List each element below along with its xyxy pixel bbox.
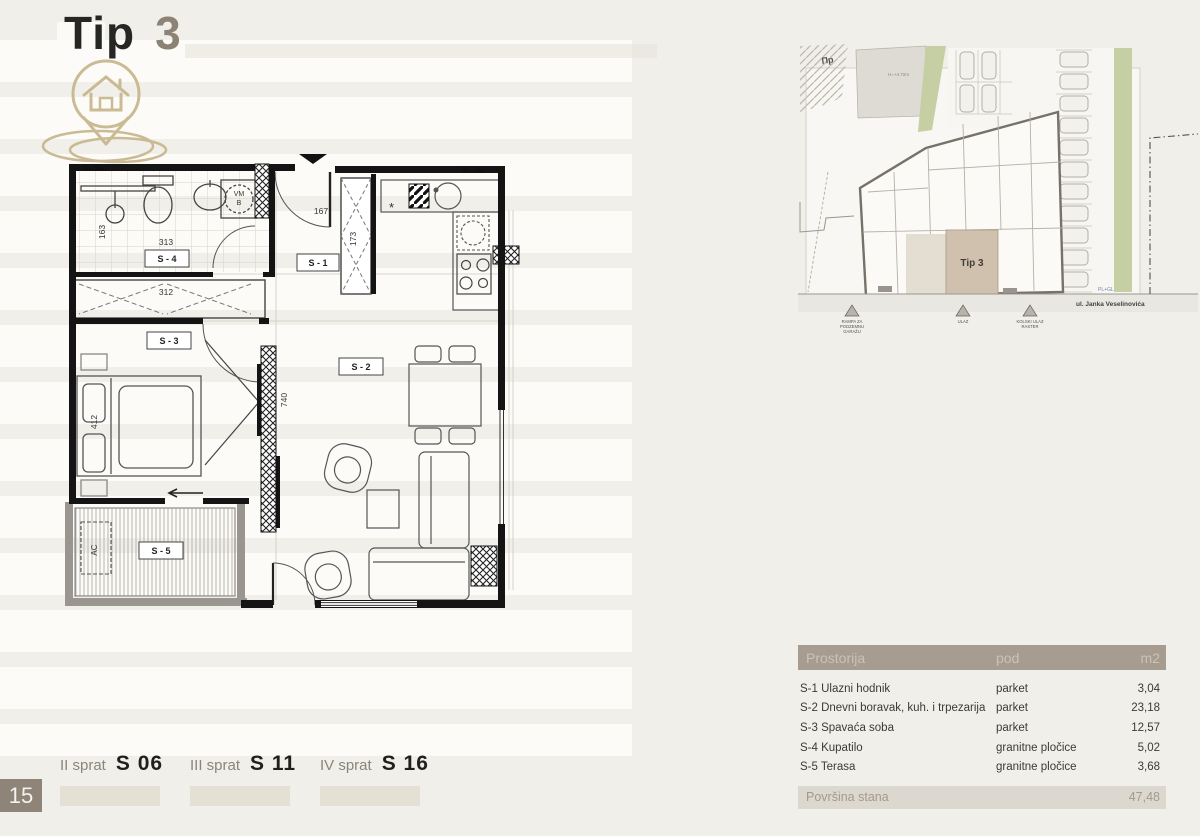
- floor-strip: 15 II spratS 06 III spratS 11 IV spratS …: [0, 752, 700, 812]
- dim-173: 173: [348, 232, 358, 246]
- total-label: Površina stana: [806, 790, 1108, 804]
- svg-text:B: B: [237, 200, 242, 207]
- svg-text:GARAŽU: GARAŽU: [843, 329, 860, 334]
- svg-text:S - 1: S - 1: [308, 258, 327, 268]
- armchair-1: [321, 440, 375, 495]
- terrace-wall-left: [65, 502, 73, 606]
- brochure-page: Tip3: [0, 0, 1200, 836]
- utility-label: PL+GL: [1098, 287, 1114, 293]
- kitchen-sink: [435, 183, 461, 209]
- property-line: [1150, 134, 1198, 294]
- wall-column-bath: [255, 164, 269, 218]
- dim-312: 312: [159, 287, 173, 297]
- table-row: S-4 Kupatilo granitne pločice 5,02: [798, 738, 1166, 758]
- kitchen-counter: [381, 180, 500, 310]
- dim-313: 313: [159, 237, 173, 247]
- title-band: [185, 44, 657, 58]
- terrace-exit-arrow: [169, 489, 203, 497]
- wardrobe-312: 312: [75, 280, 265, 318]
- site-plan: Пp H=+4.72m: [798, 42, 1198, 344]
- floor-level: IV sprat: [320, 757, 372, 774]
- terrace-wall-bottom: [65, 598, 247, 606]
- svg-text:ULAZ: ULAZ: [958, 319, 969, 324]
- side-table: [367, 490, 399, 528]
- svg-text:RASTER: RASTER: [1022, 324, 1039, 329]
- zone-label: Пp: [821, 54, 835, 66]
- table-footer: Površina stana 47,48: [798, 786, 1166, 809]
- unit-number: S 16: [382, 752, 429, 776]
- area-table: Prostorija pod m2 S-1 Ulazni hodnik park…: [798, 645, 1166, 809]
- fridge: [457, 216, 489, 250]
- street-label: ul. Janka Veselinovića: [1076, 301, 1145, 308]
- header-floor: pod: [996, 650, 1108, 666]
- floor-level: III sprat: [190, 757, 240, 774]
- unit-number: S 11: [250, 752, 296, 776]
- page-number: 15: [0, 779, 42, 812]
- dim-740: 740: [279, 393, 289, 407]
- table-row: S-2 Dnevni boravak, kuh. i trpezarija pa…: [798, 699, 1166, 719]
- header-room: Prostorija: [806, 650, 996, 666]
- unit-bar: [190, 786, 290, 806]
- armchair-2: [302, 549, 353, 602]
- dining-set: [409, 346, 481, 444]
- unit-bar: [320, 786, 420, 806]
- room-label-s2: S - 2: [339, 358, 383, 375]
- floor-unit-4: IV spratS 16: [320, 752, 440, 806]
- terrace-wall-right: [237, 502, 245, 606]
- adjacent-unit: [906, 234, 946, 294]
- floor-level: II sprat: [60, 757, 106, 774]
- floor-plan: VM B 163 313 S - 4 312 412: [63, 150, 518, 662]
- total-value: 47,48: [1108, 790, 1160, 804]
- bedroom-door-swing: [205, 340, 259, 465]
- room-label-s5: S - 5: [139, 542, 183, 559]
- bedroom-door-arc: [203, 324, 261, 382]
- table-header: Prostorija pod m2: [798, 645, 1166, 670]
- wall-column-kitchen: [493, 246, 519, 264]
- svg-text:S - 5: S - 5: [151, 546, 170, 556]
- table-row: S-5 Terasa granitne pločice 3,68: [798, 757, 1166, 777]
- table-row: S-3 Spavaća soba parket 12,57: [798, 718, 1166, 738]
- unit-label: Tip 3: [960, 258, 984, 269]
- floor-unit-3: III spratS 11: [190, 752, 310, 806]
- wall-column-center: [261, 346, 276, 532]
- wall-column-living: [471, 546, 497, 586]
- room-label-s4: S - 4: [145, 250, 189, 267]
- balcony-door-arc: [273, 563, 315, 605]
- svg-text:S - 3: S - 3: [159, 336, 178, 346]
- room-label-s3: S - 3: [147, 332, 191, 349]
- marker-labels: RAMPA ZA PODZEMNU GARAŽU ULAZ KOLSKI ULA…: [840, 319, 1044, 334]
- dim-167: 167: [314, 206, 328, 216]
- table-row: S-1 Ulazni hodnik parket 3,04: [798, 679, 1166, 699]
- unit-bar: [60, 786, 160, 806]
- header-unit: m2: [1108, 650, 1160, 666]
- height-label: H=+4.72m: [888, 72, 909, 77]
- svg-text:S - 2: S - 2: [351, 362, 370, 372]
- dim-412: 412: [89, 415, 99, 429]
- hall-cupboard-173: 173: [341, 178, 371, 294]
- room-label-s1: S - 1: [297, 254, 339, 271]
- asterisk-mark: *: [389, 200, 394, 215]
- kitchen-cabinet: [409, 184, 429, 208]
- entrance-marker: [299, 154, 327, 164]
- sofa: [369, 452, 469, 600]
- neighbor-building: [856, 46, 926, 118]
- floor-unit-2: II spratS 06: [60, 752, 180, 806]
- washing-machine-label: VM: [234, 191, 245, 198]
- svg-text:S - 4: S - 4: [157, 254, 176, 264]
- unit-number: S 06: [116, 752, 163, 776]
- ac-label: AC: [90, 544, 99, 555]
- entrance-door-arc: [275, 172, 330, 227]
- dim-163: 163: [97, 225, 107, 239]
